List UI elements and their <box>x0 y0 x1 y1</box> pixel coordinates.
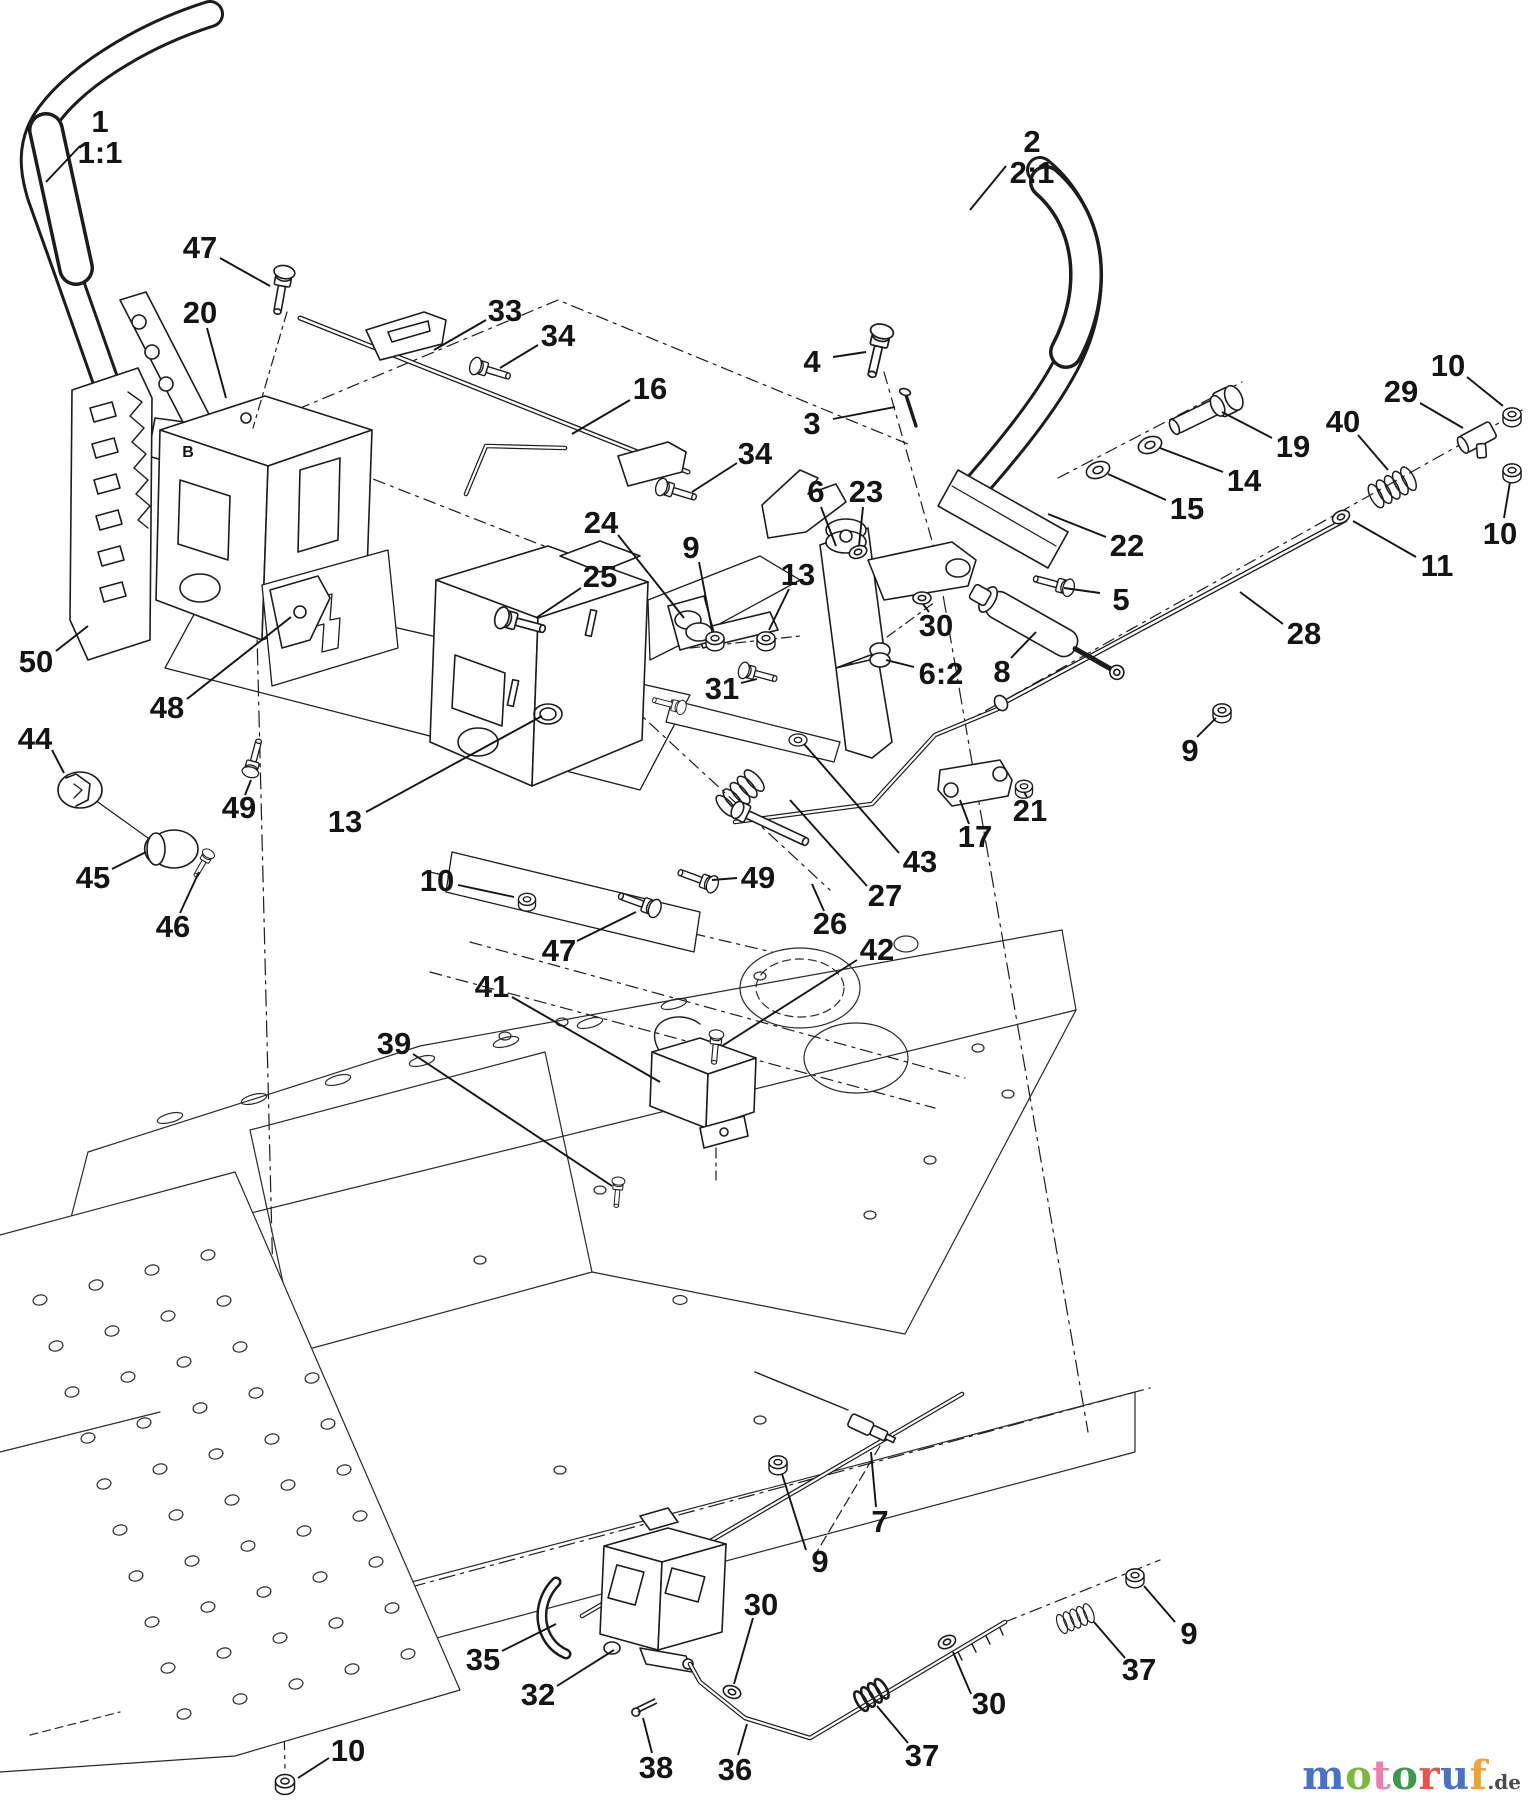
svg-text:9: 9 <box>682 530 699 565</box>
reference-letter-layer: B <box>182 444 194 461</box>
parts-diagram-page: 11:122:147203334164334191415291040101128… <box>0 0 1531 1800</box>
svg-text:47: 47 <box>183 230 217 265</box>
callout-10b: 10 <box>1483 482 1517 551</box>
right-handle-assembly <box>860 170 1089 568</box>
callout-36: 36 <box>718 1724 752 1787</box>
callout-19: 19 <box>1222 412 1310 464</box>
callout-37a: 37 <box>877 1706 939 1773</box>
callout-44: 44 <box>18 721 64 773</box>
svg-text:30: 30 <box>744 1587 778 1622</box>
svg-text:37: 37 <box>905 1738 939 1773</box>
svg-text:44: 44 <box>18 721 53 756</box>
svg-text:5: 5 <box>1112 582 1129 617</box>
svg-text:41: 41 <box>475 969 509 1004</box>
svg-text:13: 13 <box>328 804 362 839</box>
callout-50: 50 <box>19 626 88 679</box>
foot-plate <box>0 1172 460 1772</box>
callout-7: 7 <box>871 1452 889 1539</box>
callout-9b: 9 <box>1144 1586 1198 1651</box>
svg-text:3: 3 <box>803 406 820 441</box>
svg-text:28: 28 <box>1287 616 1321 651</box>
svg-text:16: 16 <box>633 371 667 406</box>
callout-48: 48 <box>150 617 291 725</box>
svg-text:49: 49 <box>741 860 775 895</box>
svg-text:10: 10 <box>1431 348 1465 383</box>
svg-text:10: 10 <box>420 863 454 898</box>
callout-11: 11 <box>1353 521 1453 583</box>
svg-text:46: 46 <box>156 909 190 944</box>
svg-text:35: 35 <box>466 1642 500 1677</box>
svg-text:47: 47 <box>542 933 576 968</box>
callout-27: 27 <box>790 800 902 913</box>
svg-text:25: 25 <box>583 559 617 594</box>
svg-text:34: 34 <box>541 318 576 353</box>
svg-text:6:2: 6:2 <box>919 656 964 691</box>
callout-38: 38 <box>639 1718 673 1785</box>
svg-text:26: 26 <box>813 906 847 941</box>
callout-9d: 9 <box>782 1474 829 1579</box>
svg-text:30: 30 <box>919 608 953 643</box>
callout-15: 15 <box>1108 474 1204 526</box>
callout-30a: 30 <box>919 604 953 643</box>
svg-text:10: 10 <box>331 1733 365 1768</box>
motoruf-watermark: motoruf.de <box>1302 1756 1521 1796</box>
svg-text:50: 50 <box>19 644 53 679</box>
svg-text:4: 4 <box>803 344 821 379</box>
callout-42: 42 <box>722 932 894 1046</box>
svg-text:17: 17 <box>958 819 992 854</box>
svg-text:9: 9 <box>811 1544 828 1579</box>
svg-text:11: 11 <box>1421 548 1454 583</box>
callout-33: 33 <box>434 293 522 350</box>
callout-62: 6:2 <box>886 656 963 691</box>
callout-8: 8 <box>993 632 1036 689</box>
svg-text:15: 15 <box>1170 491 1204 526</box>
callout-30c: 30 <box>953 1652 1006 1721</box>
callout-9c: 9 <box>1181 718 1216 768</box>
svg-text:42: 42 <box>860 932 894 967</box>
callout-40: 40 <box>1326 404 1388 470</box>
svg-text:27: 27 <box>868 878 902 913</box>
callout-16: 16 <box>572 371 667 434</box>
svg-text:13: 13 <box>781 557 815 592</box>
svg-text:24: 24 <box>584 505 619 540</box>
svg-text:23: 23 <box>849 474 883 509</box>
svg-text:45: 45 <box>76 860 110 895</box>
callout-10d: 10 <box>298 1733 365 1778</box>
callout-47a: 47 <box>183 230 270 286</box>
svg-text:32: 32 <box>521 1677 555 1712</box>
svg-text:37: 37 <box>1122 1652 1156 1687</box>
svg-text:11:1: 11:1 <box>78 104 123 170</box>
watermark-word: motoruf <box>1302 1752 1487 1799</box>
svg-text:49: 49 <box>222 790 256 825</box>
svg-text:48: 48 <box>150 690 184 725</box>
svg-text:19: 19 <box>1276 429 1310 464</box>
callout-17: 17 <box>958 800 992 854</box>
svg-text:21: 21 <box>1013 793 1047 828</box>
svg-text:34: 34 <box>738 436 773 471</box>
callout-46: 46 <box>156 872 199 944</box>
svg-text:6: 6 <box>807 474 824 509</box>
svg-text:20: 20 <box>183 295 217 330</box>
callout-49a: 49 <box>222 780 256 825</box>
svg-text:43: 43 <box>903 844 937 879</box>
callout-4: 4 <box>803 344 866 379</box>
svg-text:33: 33 <box>488 293 522 328</box>
svg-text:22:1: 22:1 <box>1010 124 1055 190</box>
reference-mark-B: B <box>182 444 194 461</box>
callout-37b: 37 <box>1094 1622 1156 1687</box>
console-plate-50 <box>70 368 152 660</box>
svg-text:30: 30 <box>972 1686 1006 1721</box>
svg-text:14: 14 <box>1227 463 1262 498</box>
svg-text:38: 38 <box>639 1750 673 1785</box>
svg-text:9: 9 <box>1180 1616 1197 1651</box>
svg-text:10: 10 <box>1483 516 1517 551</box>
svg-text:9: 9 <box>1181 733 1198 768</box>
watermark-suffix: .de <box>1487 1770 1521 1794</box>
svg-text:7: 7 <box>871 1504 888 1539</box>
solenoid-41 <box>610 1017 756 1208</box>
callout-28: 28 <box>1240 592 1321 651</box>
svg-text:39: 39 <box>377 1026 411 1061</box>
svg-text:22: 22 <box>1110 528 1144 563</box>
svg-text:31: 31 <box>705 671 739 706</box>
callout-21: 21 <box>1013 792 1047 828</box>
svg-text:36: 36 <box>718 1752 752 1787</box>
callout-49b: 49 <box>712 860 775 895</box>
callout-26: 26 <box>812 884 847 941</box>
svg-text:29: 29 <box>1384 374 1418 409</box>
svg-text:8: 8 <box>993 654 1010 689</box>
brake-cable-7 <box>755 1372 897 1475</box>
callout-45: 45 <box>76 852 146 895</box>
exploded-diagram-canvas: 11:122:147203334164334191415291040101128… <box>0 0 1531 1800</box>
callout-10a: 10 <box>1431 348 1503 406</box>
callout-30b: 30 <box>734 1587 778 1684</box>
callout-39: 39 <box>377 1026 612 1186</box>
svg-text:40: 40 <box>1326 404 1360 439</box>
callout-3: 3 <box>803 406 895 441</box>
callout-34b: 34 <box>692 436 773 492</box>
